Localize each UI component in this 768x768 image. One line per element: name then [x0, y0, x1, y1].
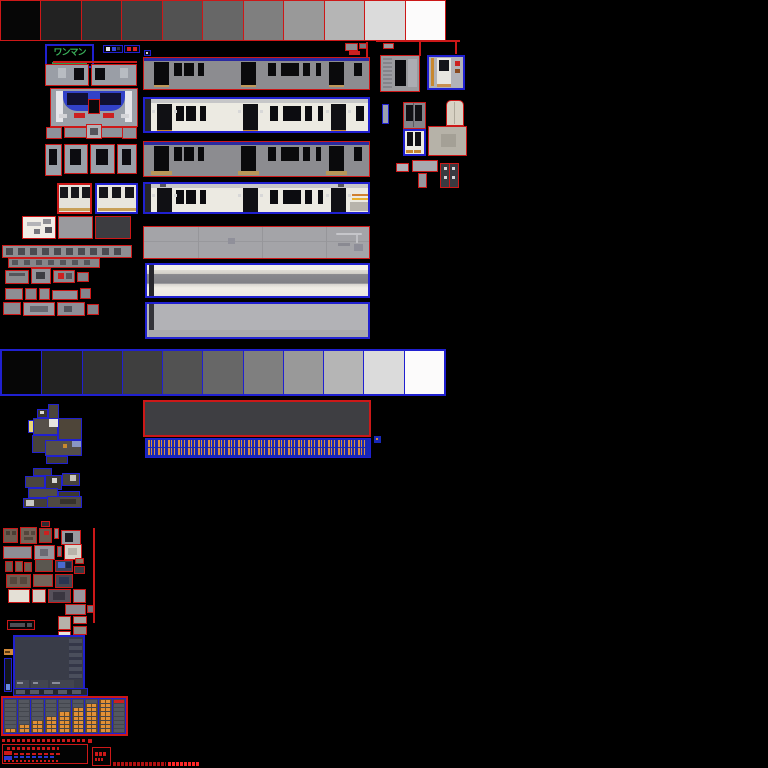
notch-indicator — [1, 696, 128, 736]
detail — [31, 531, 35, 535]
screen-blue — [58, 562, 65, 568]
fine-print-dashes — [95, 758, 103, 761]
car-door — [331, 188, 346, 212]
fine-print-dashes — [7, 747, 59, 750]
notch-slot-off — [114, 712, 125, 715]
interior-detail — [72, 441, 81, 447]
cab-windshield-glass — [100, 93, 121, 105]
car-window — [174, 147, 182, 161]
car-end-door-window — [439, 60, 449, 71]
car-window — [200, 190, 206, 204]
small-part — [345, 43, 358, 51]
button-red — [455, 61, 460, 66]
car-door-sill — [243, 212, 258, 214]
gradient-cell — [284, 1, 323, 40]
vertical-gauge-fill — [6, 684, 10, 690]
notch-column — [72, 699, 85, 733]
car-door-sill — [241, 85, 256, 87]
door-button — [260, 194, 263, 197]
detail — [68, 548, 77, 555]
small-part — [396, 163, 409, 172]
fine-print-dashes — [2, 739, 86, 742]
notch-slot-on — [59, 729, 70, 732]
door-button — [152, 194, 155, 197]
roof-seam — [198, 227, 199, 258]
car-side-gray-1 — [143, 57, 370, 90]
interior-end — [149, 265, 154, 296]
notch-slot-off — [5, 725, 16, 728]
detail — [53, 592, 65, 600]
dot — [444, 176, 447, 179]
fine-print-dashes — [4, 760, 60, 762]
panel-button-label — [52, 682, 60, 684]
dot — [52, 478, 57, 483]
notch-slot-off — [46, 708, 57, 711]
label-mark — [27, 623, 32, 627]
cab-interior-part — [58, 616, 71, 630]
notch-slot-on — [59, 712, 70, 715]
car-window — [198, 63, 204, 76]
notch-slot-on — [19, 725, 30, 728]
red-line — [376, 40, 460, 42]
notch-slot-on — [46, 725, 57, 728]
cab-interior-part — [35, 559, 53, 572]
car-window — [316, 63, 321, 76]
bogie-part — [80, 288, 91, 299]
dot — [40, 411, 44, 414]
car-window — [281, 63, 299, 76]
notch-slot-on — [73, 725, 84, 728]
swatch-red — [4, 751, 12, 755]
car-window — [268, 63, 276, 76]
notch-red-cap — [114, 700, 125, 703]
lamp-red — [127, 47, 131, 51]
door-button — [152, 110, 155, 113]
notch-slot-off — [114, 725, 125, 728]
cab-interior-part — [8, 589, 30, 603]
door-gap — [413, 103, 414, 127]
cab-interior-part — [41, 521, 50, 527]
notch-slot-on — [59, 721, 70, 724]
roof-pipe — [356, 235, 358, 243]
notch-slot-off — [32, 717, 43, 720]
detail — [12, 531, 16, 535]
notch-slot-off — [73, 704, 84, 707]
car-window — [176, 190, 184, 204]
gradient-cell — [82, 1, 121, 40]
cab-interior-part — [15, 561, 23, 572]
notch-slot-on — [5, 729, 16, 732]
door-window — [71, 187, 79, 198]
gradient-cell — [244, 351, 283, 394]
cab-interior-part — [20, 527, 37, 544]
door-sill — [98, 208, 136, 211]
car-window — [184, 147, 194, 161]
door-button — [260, 110, 263, 113]
car-window — [305, 106, 312, 121]
small-part — [146, 52, 148, 54]
bogie-detail — [30, 306, 48, 312]
car-roof-stripe — [144, 58, 370, 61]
notch-slot-off — [19, 717, 30, 720]
cab-interior-part — [75, 558, 84, 564]
notch-slot-off — [86, 700, 97, 703]
notch-slot-off — [46, 704, 57, 707]
lamp-red — [133, 47, 137, 51]
notch-slot-on — [86, 729, 97, 732]
gradient-cell — [42, 351, 81, 394]
notch-slot-on — [100, 717, 111, 720]
fine-print-text — [168, 762, 200, 766]
fine-print-text — [113, 762, 166, 766]
car-door — [331, 104, 346, 130]
fine-print-dashes — [14, 753, 62, 755]
car-window — [184, 63, 194, 76]
notch-slot-off — [73, 700, 84, 703]
rollsign-glyph-row — [148, 448, 368, 455]
narrow-bar — [382, 104, 389, 124]
tag-mark — [5, 651, 10, 653]
gradient-cell — [122, 1, 161, 40]
notch-slot-off — [114, 729, 125, 732]
interior-part — [46, 456, 68, 464]
coupler-detail — [90, 128, 98, 135]
detail — [65, 533, 73, 542]
door-button — [174, 110, 177, 113]
door-window — [406, 105, 413, 121]
notch-slot-off — [114, 721, 125, 724]
notch-slot-off — [59, 708, 70, 711]
car-door-sill — [243, 130, 258, 132]
car-window — [356, 106, 364, 121]
notch-slot-off — [59, 704, 70, 707]
door-floor-strip — [151, 171, 172, 175]
roof-seam — [144, 241, 369, 242]
roof-detail — [338, 243, 350, 246]
gradient-cell — [284, 351, 323, 394]
interior-detail — [26, 500, 34, 506]
notch-slot-off — [5, 704, 16, 707]
end-panel-window — [96, 149, 108, 165]
notch-slot-on — [73, 729, 84, 732]
fine-print-dashes — [95, 752, 107, 756]
notch-slot-on — [32, 725, 43, 728]
notch-slot-on — [73, 717, 84, 720]
car-end-sliver — [145, 99, 151, 133]
gradient-cell — [2, 351, 41, 394]
small-part — [412, 160, 438, 172]
cab-interior-part — [33, 574, 53, 587]
car-window — [318, 190, 323, 204]
destination-box — [88, 99, 100, 114]
lamp-white — [106, 47, 110, 51]
label-mark — [10, 623, 25, 627]
car-window — [281, 147, 299, 161]
cab-interior-part — [3, 546, 32, 559]
notch-slot-off — [19, 712, 30, 715]
notch-slot-on — [73, 708, 84, 711]
screen-dark — [66, 562, 71, 568]
car-door — [329, 62, 344, 85]
notch-column — [18, 699, 31, 733]
notch-slot-off — [5, 717, 16, 720]
car-window — [354, 63, 362, 76]
car-door-sill — [329, 85, 344, 87]
fine-print-dashes — [14, 756, 54, 758]
car-door-sill — [331, 212, 346, 214]
notch-slot-off — [32, 708, 43, 711]
floor-band — [149, 330, 368, 337]
car-window — [354, 147, 362, 161]
panel-detail — [34, 229, 40, 234]
cab-window — [95, 68, 105, 80]
cab-interior-part — [24, 562, 32, 572]
notch-slot-on — [46, 717, 57, 720]
gradient-cell — [123, 351, 162, 394]
car-window — [303, 63, 310, 76]
bogie-detail — [64, 306, 72, 312]
red-line — [455, 40, 457, 54]
notch-slot-off — [46, 700, 57, 703]
gradient-cell — [324, 351, 363, 394]
car-side-white-1 — [143, 97, 370, 133]
screen-dark — [59, 577, 69, 584]
notch-column — [31, 699, 44, 733]
bogie-part — [39, 288, 50, 300]
car-window — [186, 106, 196, 121]
dot — [376, 438, 378, 440]
door-gap — [449, 164, 450, 187]
car-window — [283, 106, 301, 121]
gradient-cell — [163, 1, 202, 40]
bogie-part — [87, 304, 99, 315]
notch-slot-off — [19, 708, 30, 711]
gradient-cell — [244, 1, 283, 40]
button-dark — [455, 69, 460, 73]
panel-detail — [27, 222, 41, 226]
cab-marker — [103, 113, 114, 118]
door-floor-strip — [238, 171, 259, 175]
notch-slot-on — [86, 708, 97, 711]
roof-texture-bar — [143, 226, 370, 259]
notch-slot-on — [73, 721, 84, 724]
notch-slot-on — [32, 729, 43, 732]
dot — [444, 167, 447, 170]
door-window — [125, 187, 134, 198]
car-roof-stripe — [145, 99, 370, 103]
texture-atlas-canvas: ワンマン km/h — [0, 0, 768, 768]
notch-slot-on — [19, 729, 30, 732]
roof-seam — [326, 227, 327, 258]
roof-seam — [262, 227, 263, 258]
car-window — [270, 190, 278, 204]
notch-column — [4, 699, 17, 733]
red-line — [93, 528, 95, 623]
car-end-window — [395, 60, 406, 86]
notch-slot-on — [32, 721, 43, 724]
interior-wall-bar — [145, 263, 370, 298]
notch-slot-off — [19, 704, 30, 707]
door-window — [415, 105, 422, 121]
car-door — [241, 62, 256, 85]
car-window — [186, 190, 196, 204]
skirt-part — [122, 127, 137, 139]
car-door — [243, 188, 258, 212]
detail — [10, 577, 17, 584]
underframe-boxes — [6, 248, 126, 255]
car-window — [270, 106, 278, 121]
rollsign-glyph-strip — [145, 438, 371, 458]
car-door — [157, 104, 172, 130]
door-button — [326, 194, 329, 197]
notch-slot-on — [46, 721, 57, 724]
gradient-cell — [406, 1, 445, 40]
underframe-boxes — [12, 260, 92, 265]
red-line — [419, 40, 421, 56]
panel-button-label — [33, 682, 38, 684]
detail — [40, 549, 48, 556]
car-door — [154, 146, 169, 172]
gray-ramp-top — [0, 0, 446, 41]
car-window — [176, 106, 184, 121]
notch-slot-on — [86, 725, 97, 728]
notch-slot-off — [19, 700, 30, 703]
equipment-detail — [9, 273, 25, 276]
roof-pipe — [336, 233, 362, 235]
door-button — [174, 194, 177, 197]
door-button — [348, 110, 351, 113]
notch-slot-off — [32, 712, 43, 715]
panel-gray — [58, 216, 93, 239]
roof-vent — [160, 184, 166, 187]
door-button — [326, 110, 329, 113]
notch-slot-off — [46, 712, 57, 715]
notch-column — [58, 699, 71, 733]
detail — [24, 531, 29, 535]
cab-interior-part — [73, 616, 87, 624]
car-window — [305, 190, 312, 204]
headlight — [59, 114, 67, 118]
notch-slot-on — [86, 712, 97, 715]
bogie-part — [25, 288, 37, 300]
gradient-cell — [203, 351, 242, 394]
notch-slot-on — [100, 721, 111, 724]
door-button — [348, 194, 351, 197]
notch-slot-on — [86, 704, 97, 707]
car-door — [157, 188, 172, 212]
car-window — [268, 147, 276, 161]
bogie-part — [52, 290, 78, 300]
cab-detail — [120, 68, 128, 78]
cab-interior-part — [74, 566, 85, 574]
car-door-sill — [154, 85, 169, 87]
dot — [452, 167, 455, 170]
cab-interior-part — [54, 528, 59, 539]
notch-slot-off — [5, 708, 16, 711]
door-sill — [406, 150, 413, 153]
notch-slot-on — [100, 712, 111, 715]
small-part — [418, 173, 427, 188]
car-door — [241, 146, 256, 172]
door-floor-strip — [326, 171, 347, 175]
car-roof-stripe — [144, 142, 370, 145]
notch-slot-on — [100, 708, 111, 711]
notch-slot-on — [46, 729, 57, 732]
door-button — [238, 194, 241, 197]
notch-slot-off — [5, 712, 16, 715]
door-window — [99, 187, 108, 198]
notch-slot-on — [100, 729, 111, 732]
notch-column — [99, 699, 112, 733]
notch-slot-off — [5, 700, 16, 703]
gradient-cell — [203, 1, 242, 40]
gradient-cell — [163, 351, 202, 394]
notch-slot-on — [86, 721, 97, 724]
notch-column — [45, 699, 58, 733]
equipment-detail — [36, 272, 45, 279]
decal-stripe — [352, 194, 368, 196]
cab-interior-part — [65, 604, 86, 615]
dot — [70, 475, 76, 481]
notch-slot-off — [32, 704, 43, 707]
equipment-detail — [66, 273, 72, 279]
door-window — [407, 132, 413, 146]
dot — [88, 739, 92, 743]
car-side-white-2 — [143, 182, 370, 214]
red-line — [53, 61, 137, 63]
gradient-cell — [365, 1, 404, 40]
car-door-sill — [331, 130, 346, 132]
panel-button-label — [17, 682, 23, 684]
door-window — [415, 132, 421, 146]
bogie-part — [3, 302, 21, 315]
gradient-cell — [83, 351, 122, 394]
cab-interior-part — [57, 546, 62, 557]
detail — [24, 537, 33, 540]
end-panel-window — [70, 149, 81, 165]
car-door — [154, 62, 169, 85]
notch-slot-off — [114, 704, 125, 707]
notch-slot-on — [73, 712, 84, 715]
car-window — [318, 106, 323, 121]
cab-marker — [74, 113, 85, 118]
car-window — [198, 147, 204, 161]
roof-detail — [354, 244, 363, 251]
door-button — [238, 110, 241, 113]
gradient-cell — [1, 1, 40, 40]
end-panel-window — [122, 149, 131, 165]
end-panel-window — [49, 149, 57, 165]
notch-slot-off — [59, 700, 70, 703]
notch-column — [85, 699, 98, 733]
cab-window — [74, 68, 84, 80]
dot — [63, 444, 67, 448]
gradient-cell — [325, 1, 364, 40]
gradient-cell — [405, 351, 444, 394]
cab-interior-part — [5, 561, 13, 572]
door-window — [60, 187, 68, 198]
notch-indicator-inner — [3, 698, 126, 734]
decal-stripe — [352, 198, 368, 200]
gradient-cell — [364, 351, 403, 394]
panel-list-column — [69, 639, 82, 679]
notch-slot-off — [114, 717, 125, 720]
notch-header-segments — [16, 690, 85, 694]
door-sill — [414, 150, 421, 153]
car-door — [243, 104, 258, 130]
door-sill — [437, 84, 451, 87]
detail — [6, 531, 10, 535]
